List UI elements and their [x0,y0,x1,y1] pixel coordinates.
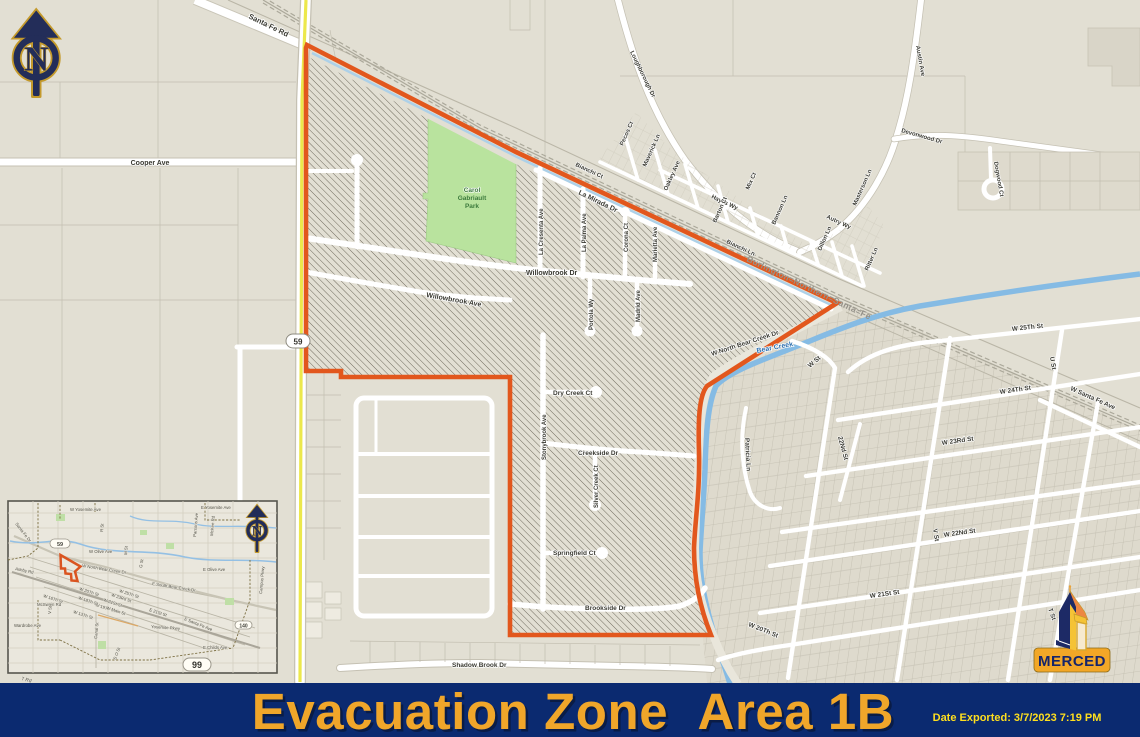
svg-text:V St: V St [47,605,53,614]
svg-text:140: 140 [239,624,248,630]
svg-text:59: 59 [294,338,303,347]
svg-text:Cooper Ave: Cooper Ave [131,160,170,167]
svg-text:Marietta Ave: Marietta Ave [653,226,659,262]
svg-text:Evacuation Zone Area 1B: Evacuation Zone Area 1B [252,683,894,737]
svg-text:Wardrobe Ave: Wardrobe Ave [14,623,42,628]
svg-text:Creekside Dr: Creekside Dr [578,450,619,457]
svg-text:E Olive Ave: E Olive Ave [203,567,226,572]
svg-text:N: N [24,40,49,79]
svg-text:La Cresenta Ave: La Cresenta Ave [539,208,545,255]
svg-text:Dry Creek Ct: Dry Creek Ct [553,390,593,397]
svg-text:Shadow Brook Dr: Shadow Brook Dr [452,662,507,669]
svg-text:W Olive Ave: W Olive Ave [89,549,113,554]
svg-text:R St: R St [99,523,105,533]
svg-text:Carol: Carol [464,187,481,194]
svg-text:Stonybrook Ave: Stonybrook Ave [542,414,548,460]
svg-text:MERCED: MERCED [1038,653,1106,670]
svg-text:La Palma Ave: La Palma Ave [582,213,588,252]
svg-text:Willowbrook Dr: Willowbrook Dr [526,270,578,277]
svg-text:E Childs Ave: E Childs Ave [203,645,228,650]
svg-text:Madrid Ave: Madrid Ave [636,289,642,322]
svg-text:E Yosemite Ave: E Yosemite Ave [201,505,231,510]
svg-text:59: 59 [57,542,63,548]
svg-text:Silver Creek Ct: Silver Creek Ct [594,465,600,508]
svg-text:Corona Ct: Corona Ct [624,223,630,252]
svg-text:M St: M St [123,545,129,555]
svg-text:N: N [252,524,263,540]
svg-text:Springfield Ct: Springfield Ct [553,550,596,557]
svg-text:Gabriault: Gabriault [458,195,487,202]
svg-text:Park: Park [465,203,479,210]
svg-text:99: 99 [192,660,202,670]
svg-text:Portola Wy: Portola Wy [589,298,595,330]
svg-text:Brookside Dr: Brookside Dr [585,605,626,612]
svg-text:W Yosemite Ave: W Yosemite Ave [70,507,102,512]
svg-text:Date Exported: 3/7/2023 7:19 P: Date Exported: 3/7/2023 7:19 PM [933,712,1102,724]
